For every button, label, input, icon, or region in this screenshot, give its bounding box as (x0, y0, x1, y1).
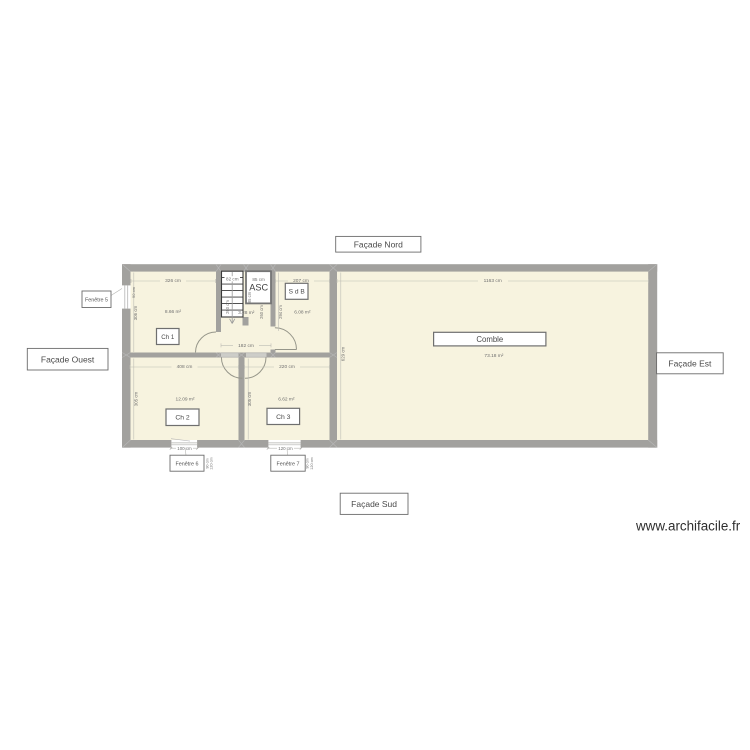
svg-text:90 cm: 90 cm (131, 286, 136, 298)
svg-text:Façade Est: Façade Est (668, 359, 712, 369)
svg-text:326 cm: 326 cm (165, 278, 181, 284)
svg-text:120 cm: 120 cm (310, 457, 314, 469)
svg-text:www.archifacile.fr: www.archifacile.fr (635, 519, 741, 534)
svg-text:260 cm: 260 cm (225, 300, 230, 314)
svg-text:Fenêtre 6: Fenêtre 6 (175, 461, 198, 467)
svg-text:Façade Sud: Façade Sud (351, 499, 397, 509)
svg-text:3.28 m²: 3.28 m² (238, 310, 255, 316)
svg-text:1163 cm: 1163 cm (484, 278, 502, 284)
svg-text:8.66 m²: 8.66 m² (165, 309, 182, 315)
svg-text:306 cm: 306 cm (133, 305, 138, 320)
svg-text:85 cm: 85 cm (247, 291, 252, 303)
svg-text:82 cm: 82 cm (226, 277, 239, 282)
svg-text:260 cm: 260 cm (259, 305, 264, 319)
svg-text:Ch 1: Ch 1 (161, 334, 175, 341)
svg-text:73.18 m²: 73.18 m² (484, 353, 503, 359)
svg-text:Ch 3: Ch 3 (276, 414, 291, 421)
svg-text:220 cm: 220 cm (279, 364, 295, 370)
svg-text:12.09 m²: 12.09 m² (176, 396, 195, 402)
svg-text:Comble: Comble (476, 335, 503, 344)
svg-text:294 cm: 294 cm (278, 305, 283, 319)
svg-text:S d B: S d B (289, 288, 306, 295)
svg-text:182 cm: 182 cm (238, 343, 254, 349)
svg-text:Fenêtre 5: Fenêtre 5 (85, 297, 108, 303)
svg-text:Façade Ouest: Façade Ouest (41, 355, 95, 365)
svg-text:Façade Nord: Façade Nord (354, 240, 403, 250)
svg-text:120 cm: 120 cm (209, 457, 213, 469)
svg-text:Ch 2: Ch 2 (175, 415, 190, 422)
svg-text:Fenêtre 7: Fenêtre 7 (276, 461, 299, 467)
svg-text:ASC: ASC (249, 282, 268, 292)
svg-text:408 cm: 408 cm (177, 364, 193, 370)
svg-text:85 cm: 85 cm (252, 277, 265, 282)
svg-text:100 cm: 100 cm (177, 446, 192, 451)
svg-text:629 cm: 629 cm (341, 346, 346, 361)
svg-text:6.08 m²: 6.08 m² (294, 310, 311, 316)
svg-text:6.62 m²: 6.62 m² (278, 397, 295, 403)
svg-text:120 cm: 120 cm (278, 446, 293, 451)
svg-text:305 cm: 305 cm (134, 391, 139, 406)
svg-text:305 cm: 305 cm (247, 391, 252, 406)
